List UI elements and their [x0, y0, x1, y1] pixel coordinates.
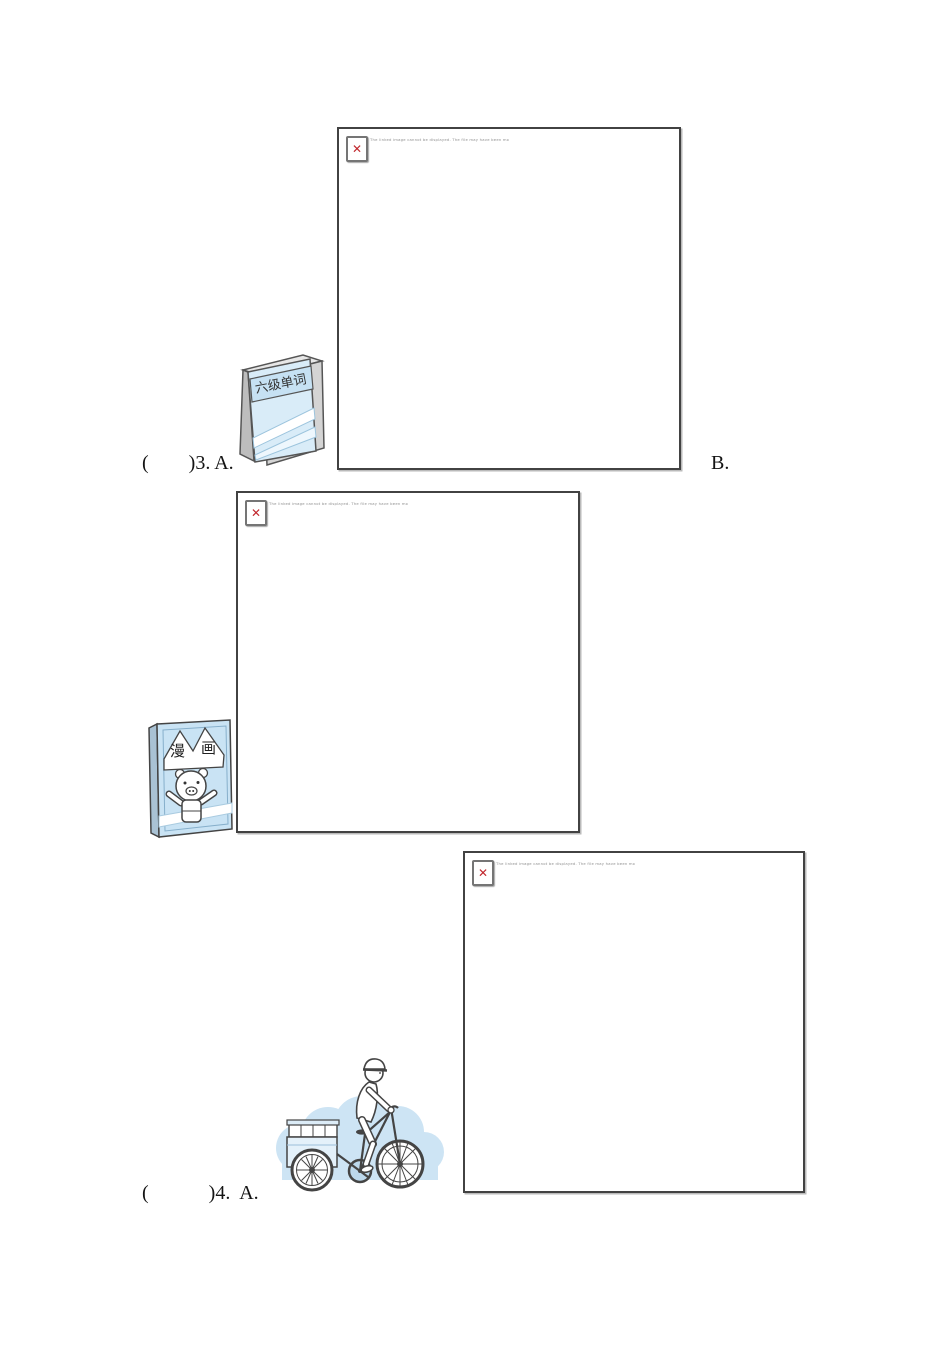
vocab-book-icon: 六级单词 — [233, 348, 329, 468]
comic-title-char-right: 画 — [201, 739, 216, 757]
question-4-label: ( )4. A. — [142, 1182, 259, 1204]
broken-image-caption: The linked image cannot be displayed. Th… — [496, 862, 635, 868]
broken-image-caption: The linked image cannot be displayed. Th… — [269, 502, 408, 508]
broken-image-box-3: ✕ The linked image cannot be displayed. … — [463, 851, 805, 1193]
broken-image-icon: ✕ — [472, 860, 494, 886]
broken-image-caption: The linked image cannot be displayed. Th… — [370, 138, 509, 144]
broken-image-box-2: ✕ The linked image cannot be displayed. … — [236, 491, 580, 833]
broken-image-icon: ✕ — [245, 500, 267, 526]
question-3-option-b-label: B. — [711, 452, 729, 474]
comic-book-illustration: 漫 画 — [143, 715, 237, 841]
question-3-label: ( )3. A. — [142, 452, 234, 474]
postman-bicycle-icon — [272, 1036, 448, 1200]
broken-image-icon: ✕ — [346, 136, 368, 162]
vocab-book-illustration: 六级单词 — [233, 348, 329, 468]
postman-bicycle-illustration — [272, 1036, 448, 1200]
broken-image-box-1: ✕ The linked image cannot be displayed. … — [337, 127, 681, 470]
cart-wheel — [292, 1150, 332, 1190]
comic-title-char-left: 漫 — [170, 742, 185, 760]
comic-book-icon: 漫 画 — [143, 715, 237, 841]
worksheet-page: ✕ The linked image cannot be displayed. … — [0, 0, 950, 1345]
